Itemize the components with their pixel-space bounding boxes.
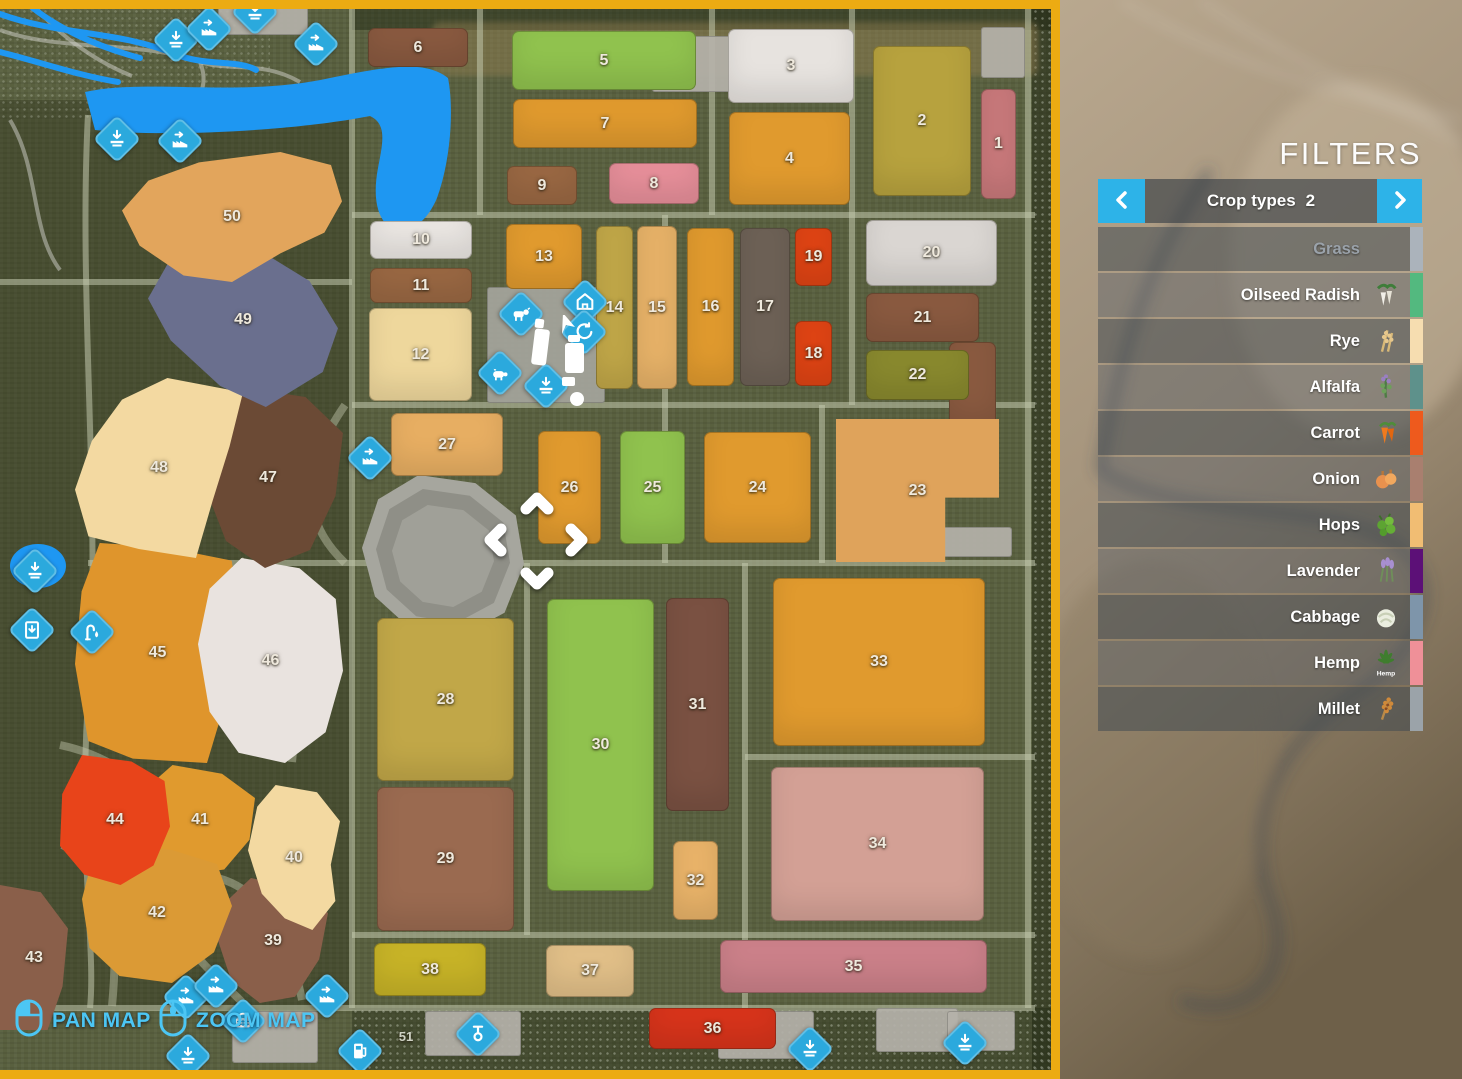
crop-color-strip xyxy=(1410,503,1423,547)
field-number: 7 xyxy=(513,99,697,148)
mouse-pan-icon xyxy=(14,998,44,1043)
alfalfa-icon xyxy=(1367,368,1405,406)
field-number: 4 xyxy=(729,112,850,205)
crop-type-label: Onion xyxy=(1098,470,1360,489)
field-35[interactable]: 35 xyxy=(720,940,987,993)
crop-type-list: GrassOilseed RadishRyeAlfalfaCarrotOnion… xyxy=(1098,227,1423,733)
crop-type-millet[interactable]: Millet xyxy=(1098,687,1423,731)
hitch-icon[interactable] xyxy=(454,1010,502,1058)
field-number: 33 xyxy=(773,578,985,746)
game-map-screen: 1234567891011121314151617191820212223242… xyxy=(0,0,1462,1079)
field-27[interactable]: 27 xyxy=(391,413,503,476)
field-36[interactable]: 36 xyxy=(649,1008,776,1049)
field-1[interactable]: 1 xyxy=(981,89,1016,199)
field-number: 19 xyxy=(795,228,832,286)
field-13[interactable]: 13 xyxy=(506,224,582,289)
field-number: 30 xyxy=(547,599,654,891)
field-24[interactable]: 24 xyxy=(704,432,811,543)
field-51[interactable]: 51 xyxy=(388,1022,424,1050)
field-number: 18 xyxy=(795,321,832,386)
crop-color-strip xyxy=(1410,273,1423,317)
field-33[interactable]: 33 xyxy=(773,578,985,746)
crop-type-oilseed-radish[interactable]: Oilseed Radish xyxy=(1098,273,1423,317)
field-number: 21 xyxy=(866,293,979,342)
field-number: 1 xyxy=(981,89,1016,199)
field-number: 13 xyxy=(506,224,582,289)
svg-text:Hemp: Hemp xyxy=(1377,671,1396,678)
crop-types-next-button[interactable] xyxy=(1377,179,1422,223)
crop-type-carrot[interactable]: Carrot xyxy=(1098,411,1423,455)
production-icon[interactable] xyxy=(185,5,233,53)
crop-color-strip xyxy=(1410,595,1423,639)
building-patch xyxy=(981,27,1025,78)
filter-category-label: Crop types xyxy=(1207,191,1296,211)
crop-type-label: Hops xyxy=(1098,516,1360,535)
field-number: 29 xyxy=(377,787,514,931)
crop-type-hemp[interactable]: HempHemp xyxy=(1098,641,1423,685)
field-number: 34 xyxy=(771,767,984,921)
field-19[interactable]: 19 xyxy=(795,228,832,286)
field-number: 3 xyxy=(728,29,854,103)
field-number: 25 xyxy=(620,431,685,544)
crop-type-alfalfa[interactable]: Alfalfa xyxy=(1098,365,1423,409)
crop-color-strip xyxy=(1410,227,1423,271)
vehicle-markers xyxy=(505,315,615,415)
field-8[interactable]: 8 xyxy=(609,163,699,204)
field-number: 31 xyxy=(666,598,729,811)
onion-icon xyxy=(1367,460,1405,498)
field-number: 6 xyxy=(368,28,468,67)
carrot-icon xyxy=(1367,414,1405,452)
field-number: 2 xyxy=(873,46,971,196)
map-canvas[interactable]: 1234567891011121314151617191820212223242… xyxy=(0,0,1060,1079)
rye-icon xyxy=(1367,322,1405,360)
crop-type-label: Oilseed Radish xyxy=(1098,286,1360,305)
field-number: 24 xyxy=(704,432,811,543)
hemp-icon: Hemp xyxy=(1367,644,1405,682)
filters-panel: FILTERS Crop types 2 GrassOilseed Radish… xyxy=(1060,0,1462,1079)
field-21[interactable]: 21 xyxy=(866,293,979,342)
crop-color-strip xyxy=(1410,319,1423,363)
chevron-left-icon xyxy=(1113,190,1131,213)
map-border-bottom xyxy=(0,1070,1060,1079)
field-18[interactable]: 18 xyxy=(795,321,832,386)
filter-category-count: 2 xyxy=(1306,191,1315,211)
crop-type-label: Cabbage xyxy=(1098,608,1360,627)
crop-type-label: Grass xyxy=(1098,240,1360,259)
field-6[interactable]: 6 xyxy=(368,28,468,67)
production-icon[interactable] xyxy=(156,117,204,165)
zoom-map-label: ZOOM MAP xyxy=(196,1009,316,1033)
crop-color-strip xyxy=(1410,549,1423,593)
field-number: 27 xyxy=(391,413,503,476)
field-5[interactable]: 5 xyxy=(512,31,696,90)
chevron-right-icon xyxy=(1391,190,1409,213)
field-34[interactable]: 34 xyxy=(771,767,984,921)
field-number: 22 xyxy=(866,350,969,400)
field-30[interactable]: 30 xyxy=(547,599,654,891)
field-number: 10 xyxy=(370,221,472,259)
unload-icon[interactable] xyxy=(93,115,141,163)
field-22[interactable]: 22 xyxy=(866,350,969,400)
field-number: 8 xyxy=(609,163,699,204)
field-number: 12 xyxy=(369,308,472,401)
field-number: 28 xyxy=(377,618,514,781)
map-border-top xyxy=(0,0,1060,9)
lavender-icon xyxy=(1367,552,1405,590)
crop-type-onion[interactable]: Onion xyxy=(1098,457,1423,501)
crop-type-lavender[interactable]: Lavender xyxy=(1098,549,1423,593)
field-25[interactable]: 25 xyxy=(620,431,685,544)
millet-icon xyxy=(1367,690,1405,728)
fuel-icon[interactable] xyxy=(336,1027,384,1075)
map-border-right xyxy=(1051,0,1060,1079)
crop-color-strip xyxy=(1410,365,1423,409)
field-number: 37 xyxy=(546,945,634,997)
field-number: 51 xyxy=(388,1022,424,1050)
crop-color-strip xyxy=(1410,457,1423,501)
field-number: 32 xyxy=(673,841,718,920)
crop-type-hops[interactable]: Hops xyxy=(1098,503,1423,547)
crop-type-grass[interactable]: Grass xyxy=(1098,227,1423,271)
crop-color-strip xyxy=(1410,411,1423,455)
field-3[interactable]: 3 xyxy=(728,29,854,103)
field-4[interactable]: 4 xyxy=(729,112,850,205)
unload-icon[interactable] xyxy=(11,547,59,595)
field-number: 5 xyxy=(512,31,696,90)
crop-color-strip xyxy=(1410,641,1423,685)
field-32[interactable]: 32 xyxy=(673,841,718,920)
crop-type-label: Millet xyxy=(1098,700,1360,719)
hops-icon xyxy=(1367,506,1405,544)
pan-map-label: PAN MAP xyxy=(52,1009,151,1033)
pan-cursor xyxy=(480,485,592,597)
crop-type-label: Hemp xyxy=(1098,654,1360,673)
production-icon[interactable] xyxy=(346,434,394,482)
mouse-zoom-icon xyxy=(158,998,188,1043)
crop-type-label: Rye xyxy=(1098,332,1360,351)
field-37[interactable]: 37 xyxy=(546,945,634,997)
field-38[interactable]: 38 xyxy=(374,943,486,996)
field-number: 20 xyxy=(866,220,997,286)
field-12[interactable]: 12 xyxy=(369,308,472,401)
zoom-map-hint: ZOOM MAP xyxy=(158,998,316,1043)
field-11[interactable]: 11 xyxy=(370,268,472,303)
field-number: 35 xyxy=(720,940,987,993)
field-number: 38 xyxy=(374,943,486,996)
field-9[interactable]: 9 xyxy=(507,166,577,205)
crop-type-rye[interactable]: Rye xyxy=(1098,319,1423,363)
no-icon xyxy=(1367,230,1405,268)
field-number: 9 xyxy=(507,166,577,205)
crop-color-strip xyxy=(1410,687,1423,731)
filter-category-header: Crop types 2 xyxy=(1145,179,1377,223)
crop-type-label: Alfalfa xyxy=(1098,378,1360,397)
field-16[interactable]: 16 xyxy=(687,228,734,386)
field-number: 15 xyxy=(637,226,677,389)
field-10[interactable]: 10 xyxy=(370,221,472,259)
field-17[interactable]: 17 xyxy=(740,228,790,386)
crop-types-prev-button[interactable] xyxy=(1098,179,1145,223)
field-number: 36 xyxy=(649,1008,776,1049)
field-number: 11 xyxy=(370,268,472,303)
field-31[interactable]: 31 xyxy=(666,598,729,811)
crop-type-label: Carrot xyxy=(1098,424,1360,443)
water-icon[interactable] xyxy=(68,608,116,656)
production-icon[interactable] xyxy=(292,20,340,68)
unload-icon[interactable] xyxy=(786,1025,834,1073)
unload-icon[interactable] xyxy=(941,1019,989,1067)
field-number: 16 xyxy=(687,228,734,386)
cabbage-icon xyxy=(1367,598,1405,636)
oilseed-radish-icon xyxy=(1367,276,1405,314)
field-15[interactable]: 15 xyxy=(637,226,677,389)
field-number: 17 xyxy=(740,228,790,386)
crop-type-cabbage[interactable]: Cabbage xyxy=(1098,595,1423,639)
field-20[interactable]: 20 xyxy=(866,220,997,286)
field-7[interactable]: 7 xyxy=(513,99,697,148)
pan-map-hint: PAN MAP xyxy=(14,998,151,1043)
bale-icon[interactable] xyxy=(8,606,56,654)
field-2[interactable]: 2 xyxy=(873,46,971,196)
filters-title: FILTERS xyxy=(1279,136,1422,172)
crop-type-label: Lavender xyxy=(1098,562,1360,581)
field-28[interactable]: 28 xyxy=(377,618,514,781)
field-29[interactable]: 29 xyxy=(377,787,514,931)
